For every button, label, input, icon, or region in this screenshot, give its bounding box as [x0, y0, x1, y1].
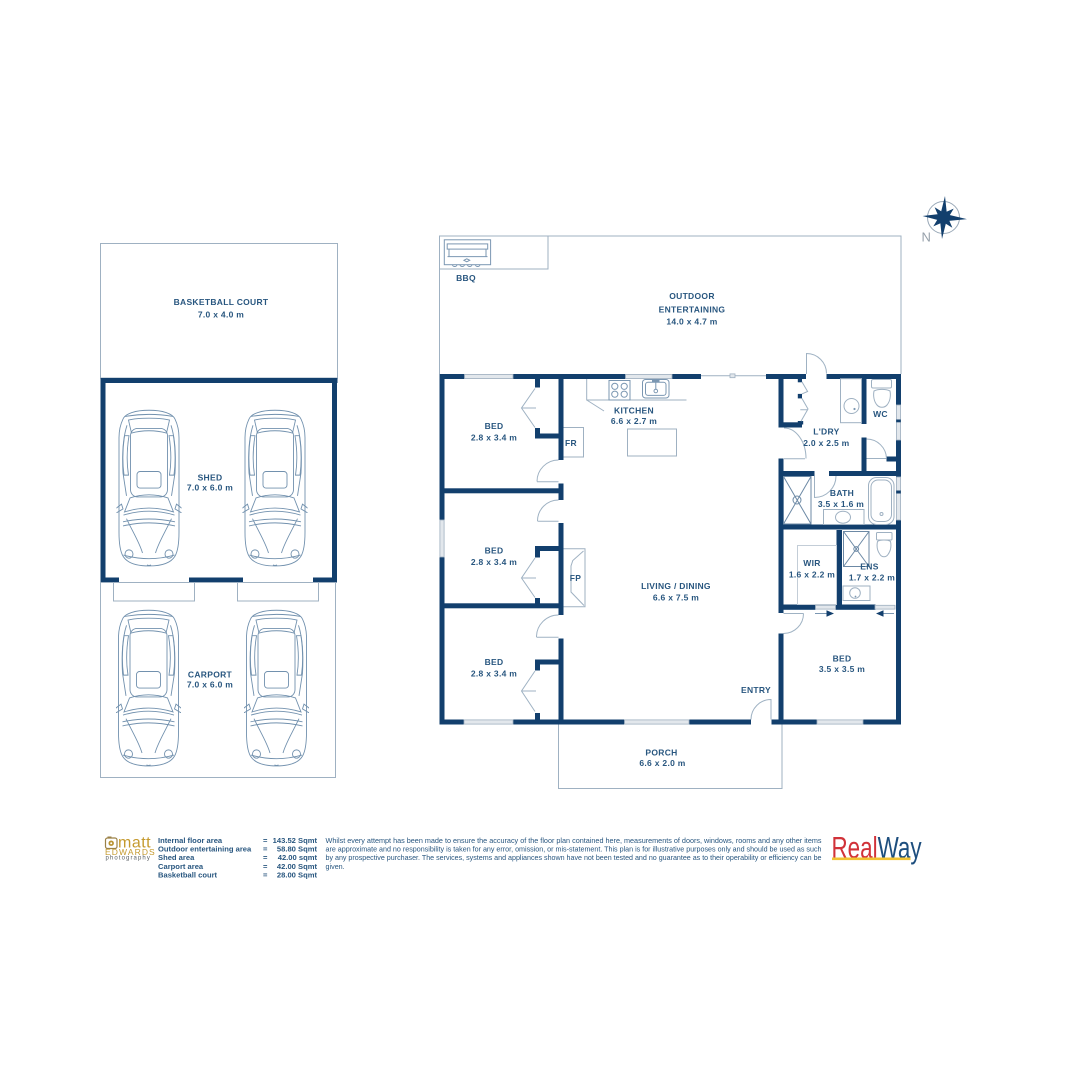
svg-text:6.6 x 2.0 m: 6.6 x 2.0 m [639, 758, 685, 768]
svg-text:WC: WC [873, 409, 888, 419]
svg-text:BED: BED [485, 657, 504, 667]
svg-text:=: = [263, 836, 268, 845]
svg-text:Internal floor area: Internal floor area [158, 836, 223, 845]
svg-text:7.0 x 6.0 m: 7.0 x 6.0 m [187, 483, 233, 493]
svg-text:BASKETBALL COURT: BASKETBALL COURT [174, 297, 269, 307]
svg-text:7.0 x 6.0 m: 7.0 x 6.0 m [187, 680, 233, 690]
svg-text:LIVING / DINING: LIVING / DINING [641, 581, 711, 591]
svg-text:BED: BED [833, 654, 852, 664]
svg-text:42.00 Sqmt: 42.00 Sqmt [277, 862, 318, 871]
svg-text:3.5 x 3.5 m: 3.5 x 3.5 m [819, 664, 865, 674]
svg-text:2.8 x 3.4 m: 2.8 x 3.4 m [471, 668, 517, 678]
svg-text:BED: BED [485, 546, 504, 556]
svg-text:are approximate and no respons: are approximate and no responsibility is… [326, 845, 822, 854]
svg-text:=: = [263, 853, 268, 862]
svg-text:ENTERTAINING: ENTERTAINING [659, 305, 726, 315]
svg-text:2.8 x 3.4 m: 2.8 x 3.4 m [471, 557, 517, 567]
svg-text:2.0 x 2.5 m: 2.0 x 2.5 m [803, 438, 849, 448]
svg-text:6.6 x 7.5 m: 6.6 x 7.5 m [653, 592, 699, 602]
svg-text:WIR: WIR [803, 558, 820, 568]
svg-text:3.5 x 1.6 m: 3.5 x 1.6 m [818, 499, 864, 509]
svg-text:=: = [263, 845, 268, 854]
svg-text:Basketball court: Basketball court [158, 871, 218, 880]
svg-text:BATH: BATH [830, 488, 854, 498]
svg-text:BED: BED [485, 421, 504, 431]
svg-text:Outdoor entertaining area: Outdoor entertaining area [158, 845, 252, 854]
svg-text:by any prospective purchaser.: by any prospective purchaser. The servic… [326, 853, 822, 862]
svg-text:L'DRY: L'DRY [813, 427, 839, 437]
svg-text:6.6 x 2.7 m: 6.6 x 2.7 m [611, 416, 657, 426]
svg-text:OUTDOOR: OUTDOOR [669, 291, 715, 301]
svg-text:CARPORT: CARPORT [188, 670, 233, 680]
svg-text:N: N [922, 230, 931, 245]
svg-text:=: = [263, 871, 268, 880]
svg-text:Shed area: Shed area [158, 853, 195, 862]
svg-text:7.0 x 4.0 m: 7.0 x 4.0 m [198, 309, 244, 319]
svg-text:42.00 sqmt: 42.00 sqmt [278, 853, 318, 862]
svg-text:KITCHEN: KITCHEN [614, 405, 654, 415]
svg-text:photography: photography [106, 856, 151, 862]
svg-text:ENTRY: ENTRY [741, 685, 771, 695]
svg-text:ENS: ENS [860, 561, 878, 571]
svg-text:PORCH: PORCH [645, 748, 677, 758]
svg-text:BBQ: BBQ [456, 273, 476, 283]
svg-text:given.: given. [326, 862, 345, 871]
svg-text:Carport area: Carport area [158, 862, 204, 871]
svg-text:Whilst every attempt has been: Whilst every attempt has been made to en… [326, 836, 822, 845]
svg-text:FR: FR [565, 438, 577, 448]
svg-text:FP: FP [570, 573, 581, 583]
svg-text:28.00 Sqmt: 28.00 Sqmt [277, 871, 318, 880]
svg-text:58.80 Sqmt: 58.80 Sqmt [277, 845, 318, 854]
svg-text:143.52 Sqmt: 143.52 Sqmt [273, 836, 318, 845]
svg-text:1.6 x 2.2 m: 1.6 x 2.2 m [789, 570, 835, 580]
svg-text:1.7 x 2.2 m: 1.7 x 2.2 m [849, 573, 895, 583]
svg-text:14.0 x 4.7 m: 14.0 x 4.7 m [666, 316, 717, 326]
svg-text:2.8 x 3.4 m: 2.8 x 3.4 m [471, 432, 517, 442]
svg-text:=: = [263, 862, 268, 871]
svg-text:SHED: SHED [198, 472, 223, 482]
